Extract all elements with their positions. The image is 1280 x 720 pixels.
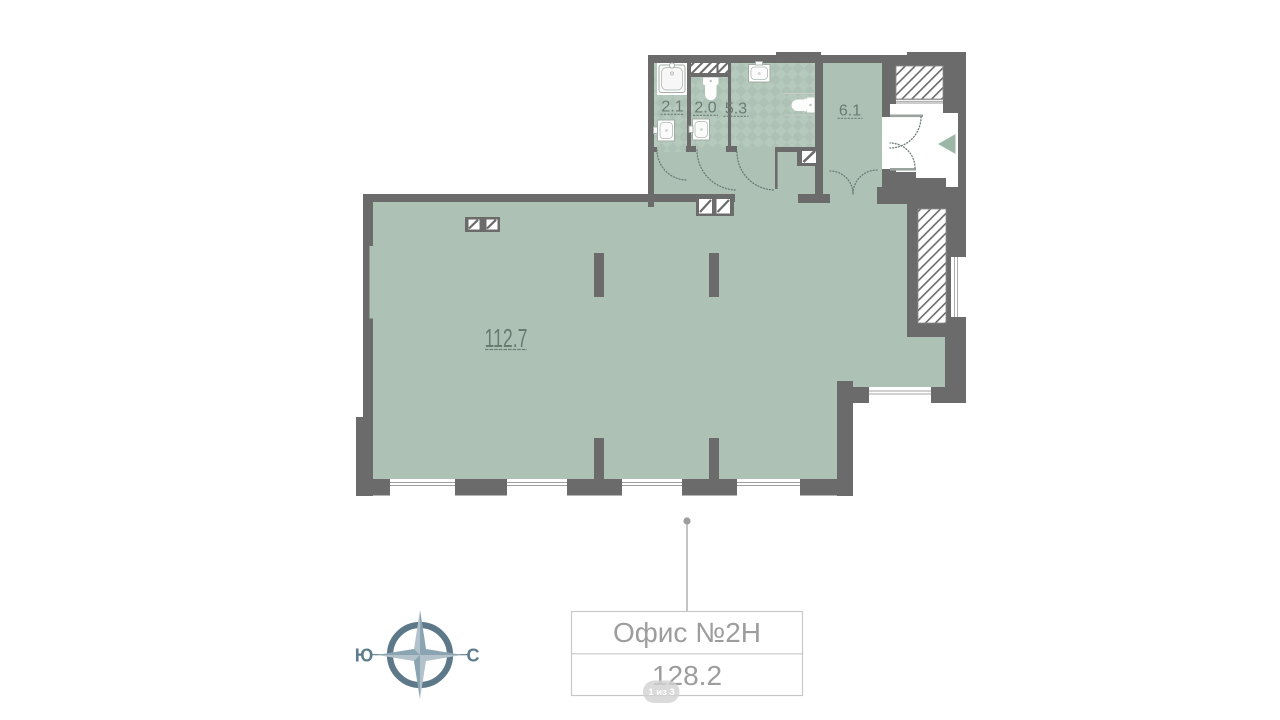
svg-text:2.0: 2.0 (694, 100, 716, 117)
svg-text:2.1: 2.1 (661, 99, 683, 116)
svg-text:1 из 3: 1 из 3 (648, 687, 674, 698)
svg-text:Офис №2Н: Офис №2Н (613, 617, 761, 648)
svg-text:5.3: 5.3 (725, 101, 747, 118)
svg-text:С: С (467, 646, 480, 666)
svg-text:6.1: 6.1 (839, 103, 861, 120)
svg-text:112.7: 112.7 (485, 324, 528, 353)
svg-text:Ю: Ю (355, 646, 374, 666)
